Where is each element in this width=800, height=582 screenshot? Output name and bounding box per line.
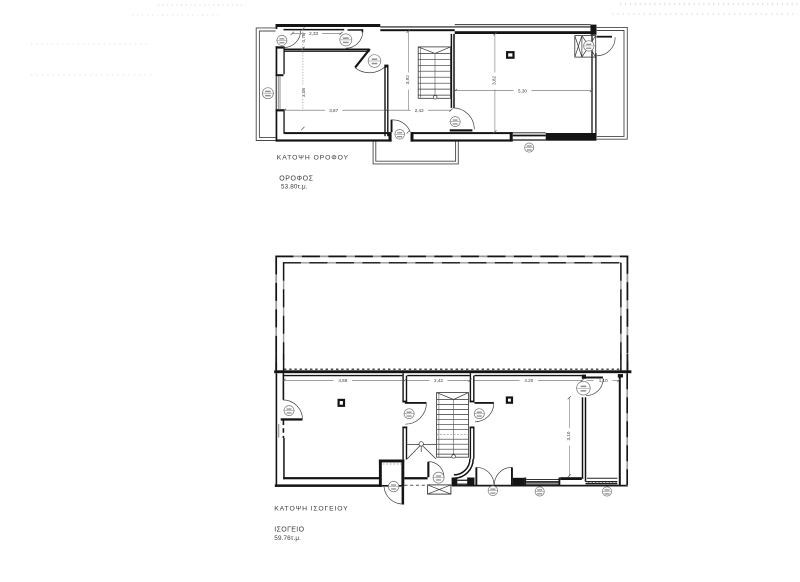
svg-text:3,08: 3,08 — [301, 88, 306, 97]
svg-text:0,76: 0,76 — [301, 33, 306, 42]
svg-text:1,10: 1,10 — [599, 378, 608, 383]
svg-text:3,82: 3,82 — [492, 75, 497, 84]
svg-text:ΚΑΤΟΨΗ ΟΡΟΦΟΥ: ΚΑΤΟΨΗ ΟΡΟΦΟΥ — [277, 154, 349, 161]
svg-text:3,87: 3,87 — [329, 108, 338, 113]
svg-text:ΙΣΟΓΕΙΟ: ΙΣΟΓΕΙΟ — [274, 526, 304, 533]
svg-text:3,10: 3,10 — [566, 431, 571, 440]
svg-text:ΚΑΤΟΨΗ ΙΣΟΓΕΙΟΥ: ΚΑΤΟΨΗ ΙΣΟΓΕΙΟΥ — [274, 506, 348, 513]
svg-text:ΟΡΟΦΟΣ: ΟΡΟΦΟΣ — [279, 175, 313, 182]
svg-text:59.76τ.μ.: 59.76τ.μ. — [274, 535, 301, 542]
svg-text:5,30: 5,30 — [518, 88, 527, 93]
svg-text:4.20: 4.20 — [524, 378, 533, 383]
svg-text:2,33: 2,33 — [309, 31, 318, 36]
svg-text:4,58: 4,58 — [338, 378, 347, 383]
svg-text:2,42: 2,42 — [434, 378, 443, 383]
svg-text:2,42: 2,42 — [415, 108, 424, 113]
svg-text:3,92: 3,92 — [405, 75, 410, 84]
svg-text:53.80τ.μ.: 53.80τ.μ. — [281, 184, 308, 191]
